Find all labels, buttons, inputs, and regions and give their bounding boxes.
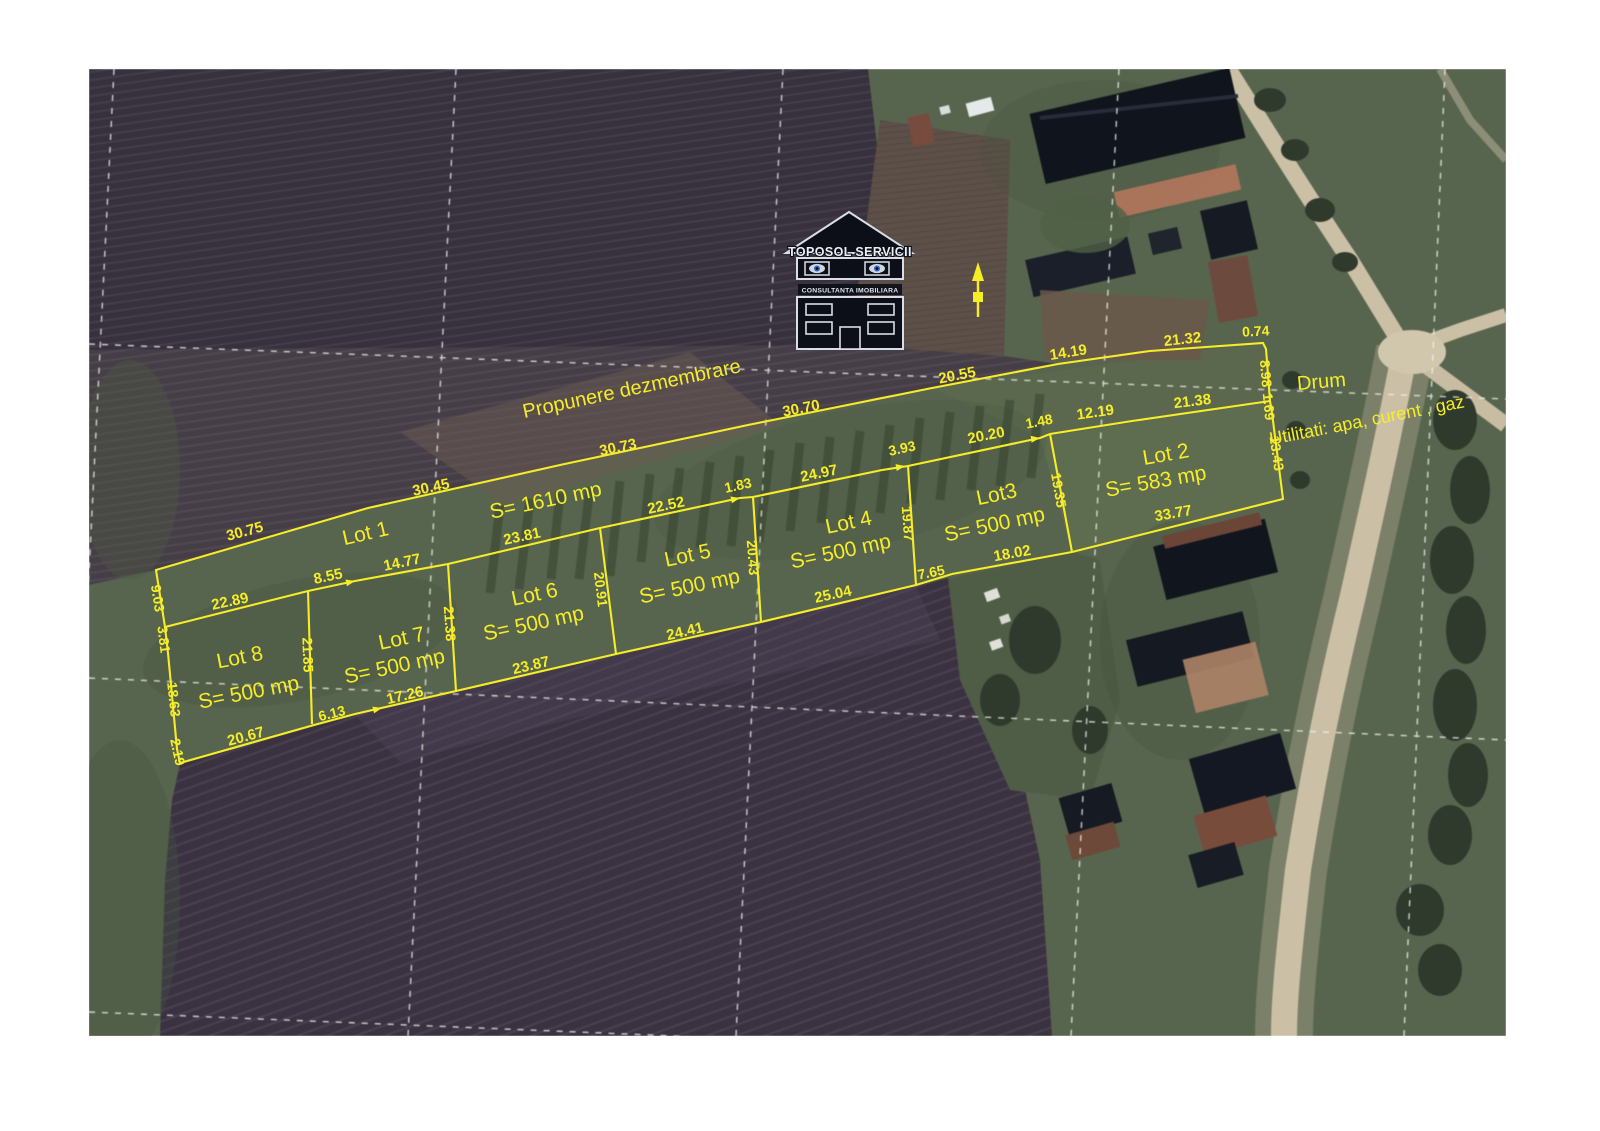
cadastral-map: TOPOSOL SERVICII CONSULTANTA IMOBILIARA …	[0, 0, 1600, 1131]
note-label: Drum	[1296, 369, 1347, 395]
logo-title: TOPOSOL SERVICII	[788, 245, 912, 259]
dimension-label: 21.38	[441, 606, 459, 642]
logo-subtitle: CONSULTANTA IMOBILIARA	[802, 288, 899, 295]
dimension-label: 0.74	[1242, 322, 1270, 339]
dimension-label: 19.87	[899, 506, 917, 542]
dimension-label: 3.81	[154, 625, 173, 654]
dimension-label: 1.69	[1260, 392, 1278, 421]
plan-sheet: TOPOSOL SERVICII CONSULTANTA IMOBILIARA …	[0, 0, 1600, 1131]
logo-door	[840, 327, 860, 349]
dimension-label: 21.85	[299, 637, 316, 673]
photo-background	[60, 68, 1506, 1070]
dimension-label: 8.98	[1257, 359, 1275, 388]
dimension-label: 20.43	[744, 540, 762, 576]
